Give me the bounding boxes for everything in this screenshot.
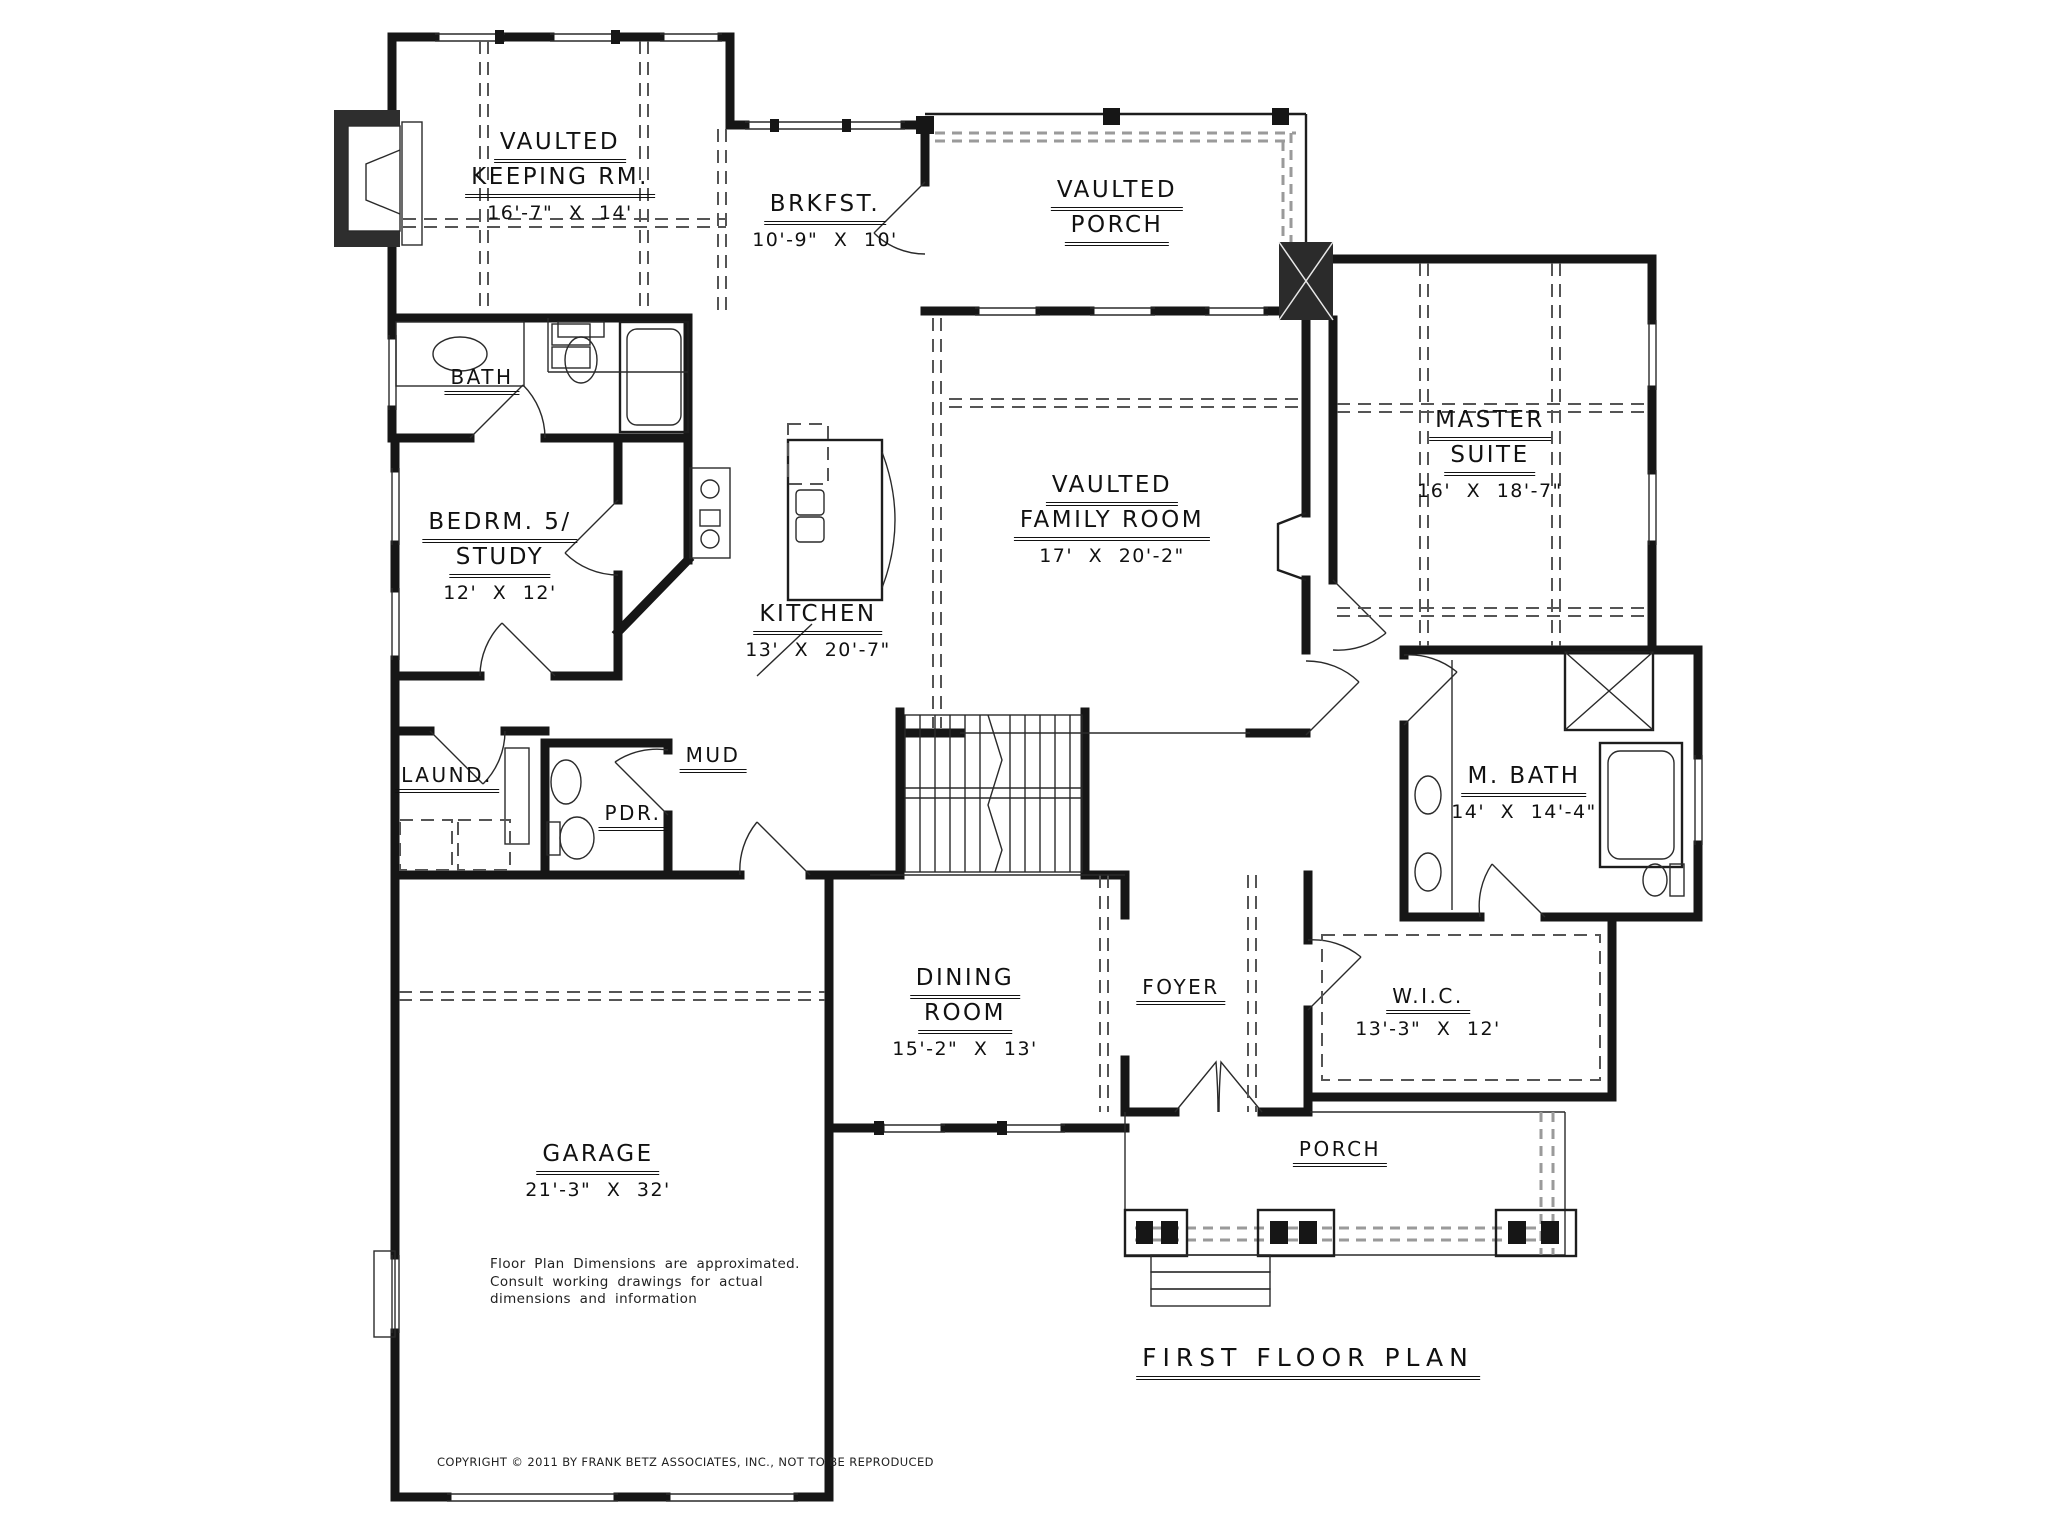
room-label-powder: PDR. — [598, 800, 667, 831]
toilet-icon — [1643, 864, 1667, 896]
toilet-icon — [560, 817, 594, 859]
plan-title: FIRST FLOOR PLAN — [1136, 1342, 1480, 1380]
room-label-mbath: M. BATH 14' X 14'-4" — [1451, 762, 1597, 823]
beam-lines — [870, 733, 1250, 875]
floor-plan-page: .w{stroke:#161616;stroke-width:9;stroke-… — [0, 0, 2048, 1536]
room-label-dining: DINING ROOM 15'-2" X 13' — [892, 964, 1038, 1060]
chimney-icon — [1279, 242, 1333, 320]
range-icon — [690, 468, 730, 558]
room-label-vaulted-porch: VAULTED PORCH — [1051, 176, 1183, 246]
copyright-text: COPYRIGHT © 2011 BY FRANK BETZ ASSOCIATE… — [437, 1455, 934, 1469]
room-label-family: VAULTED FAMILY ROOM 17' X 20'-2" — [1014, 471, 1210, 567]
room-label-foyer: FOYER — [1136, 974, 1225, 1005]
bathtub-icon — [1600, 743, 1682, 867]
toilet-icon — [565, 337, 597, 383]
room-label-mud: MUD — [680, 742, 747, 773]
kitchen-sink-icon — [796, 490, 824, 515]
sink-icon — [1415, 776, 1441, 814]
bathtub-icon — [620, 322, 688, 432]
room-label-wic: W.I.C. 13'-3" X 12' — [1355, 983, 1501, 1040]
sink-icon — [551, 760, 581, 804]
room-label-garage: GARAGE 21'-3" X 32' — [525, 1140, 671, 1201]
sink-icon — [1415, 853, 1441, 891]
media-niche — [1278, 513, 1306, 580]
room-label-porch: PORCH — [1293, 1136, 1387, 1167]
room-label-master: MASTER SUITE 16' X 18'-7" — [1417, 406, 1563, 502]
room-label-bedroom5: BEDRM. 5/ STUDY 12' X 12' — [422, 508, 577, 604]
floor-plan-drawing: .w{stroke:#161616;stroke-width:9;stroke-… — [0, 0, 2048, 1536]
kitchen-fixtures — [548, 318, 895, 600]
porch-columns — [1125, 1210, 1576, 1256]
front-steps-icon — [1151, 1255, 1270, 1306]
room-label-keeping: VAULTED KEEPING RM. 16'-7" X 14' — [465, 128, 655, 224]
room-label-kitchen: KITCHEN 13' X 20'-7" — [745, 600, 891, 661]
kitchen-island-icon — [788, 440, 882, 600]
room-label-bath: BATH — [444, 364, 519, 395]
staircase-icon — [905, 715, 1082, 872]
room-label-laundry: LAUND. — [395, 762, 499, 793]
dryer-icon — [458, 820, 510, 870]
room-label-brkfst: BRKFST. 10'-9" X 10' — [752, 190, 898, 251]
disclaimer-note: Floor Plan Dimensions are approximated. … — [490, 1256, 800, 1309]
powder-fixtures — [547, 760, 594, 859]
washer-icon — [400, 820, 452, 870]
